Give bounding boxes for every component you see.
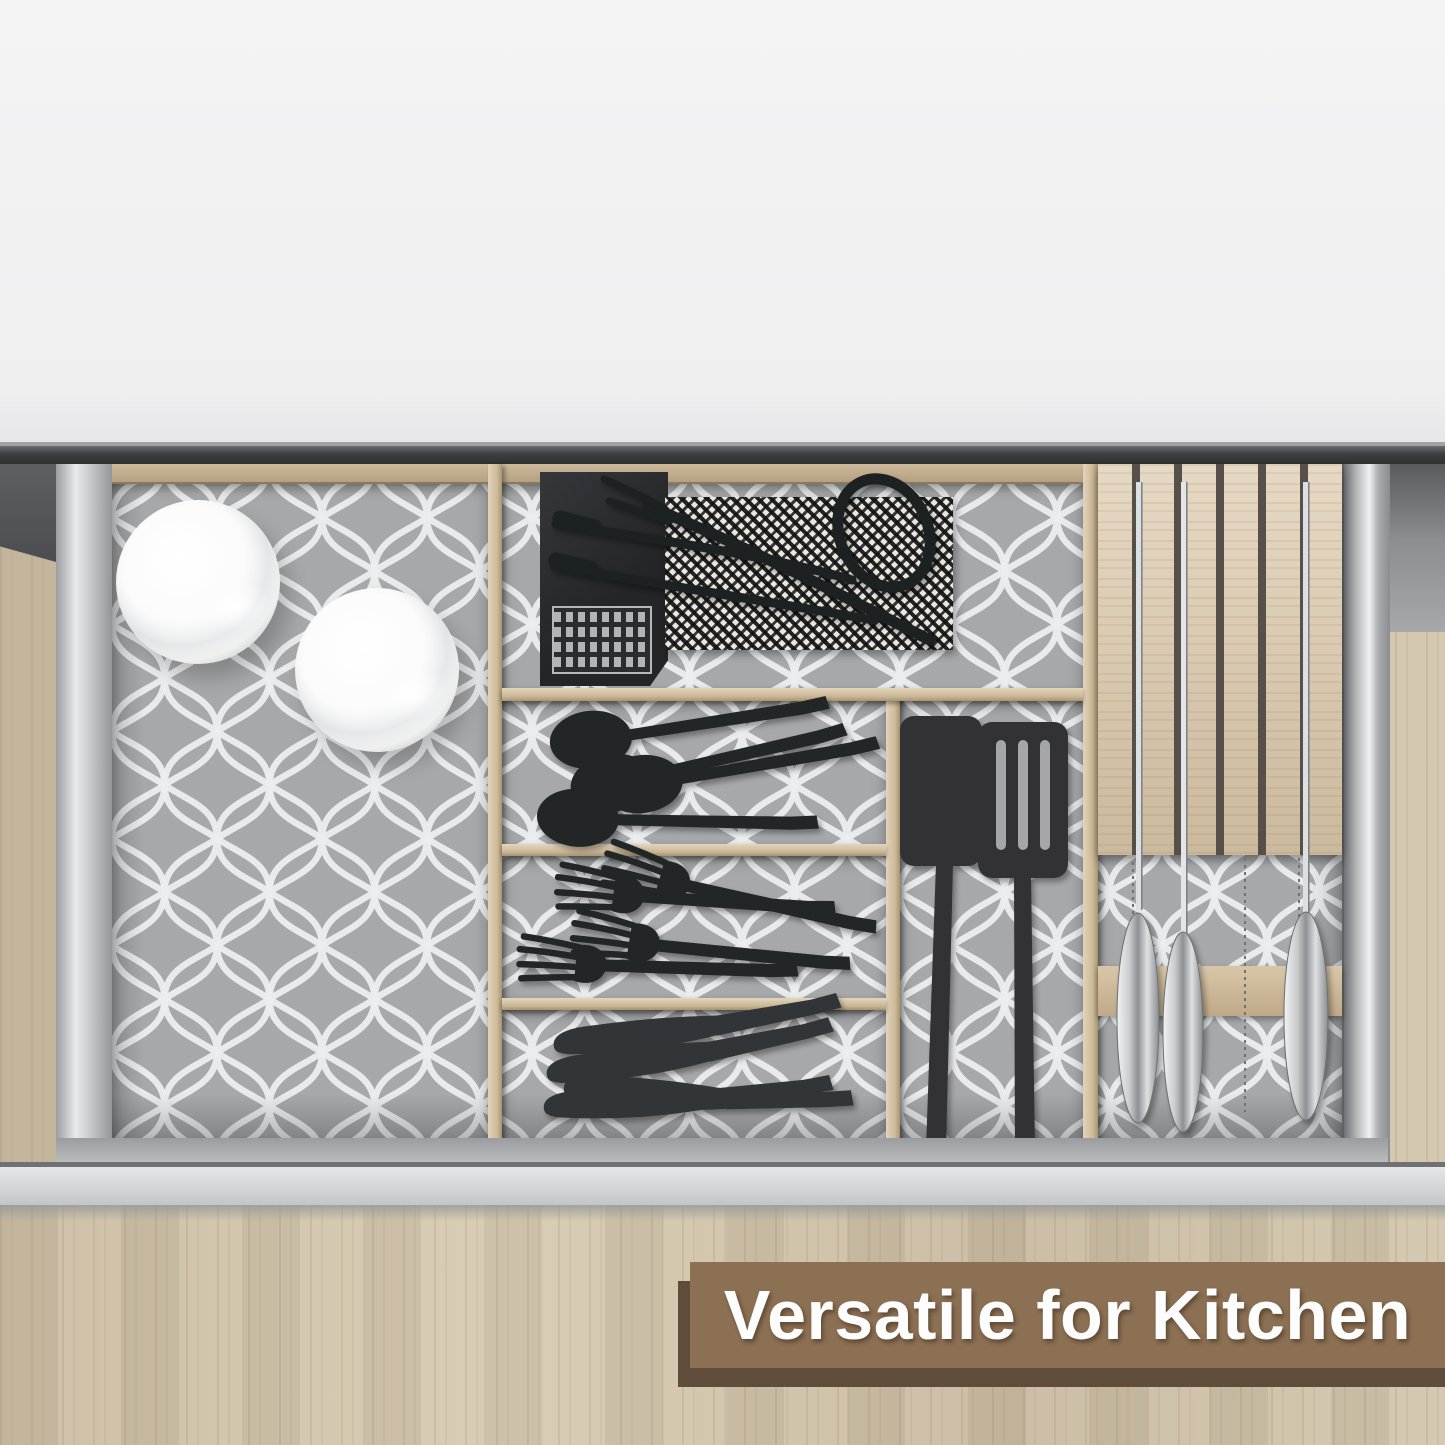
utensils-overlay: [0, 0, 1445, 1445]
steel-knife-handles: [1117, 912, 1328, 1132]
drawer-front-panel: [0, 1167, 1445, 1205]
drawer-inner-lip: [56, 1138, 1388, 1162]
slotted-turner-handle: [1014, 876, 1035, 1150]
black-spoons: [535, 686, 884, 864]
black-forks: [517, 841, 880, 1002]
turner-slot: [1018, 740, 1028, 850]
grill-fork-handle: [648, 506, 930, 640]
black-knives: [543, 993, 855, 1126]
banner-text: Versatile for Kitchen: [724, 1275, 1411, 1355]
turner-slot: [996, 740, 1006, 850]
product-photo-canvas: Versatile for Kitchen: [0, 0, 1445, 1445]
grill-tools: [554, 464, 947, 640]
solid-turner-head: [900, 716, 982, 866]
solid-turner-handle: [926, 864, 953, 1150]
black-spatulas: [900, 716, 1068, 1150]
turner-slot: [1040, 740, 1050, 850]
banner: Versatile for Kitchen: [690, 1262, 1445, 1368]
drawer-front-shadow: [0, 1205, 1445, 1221]
